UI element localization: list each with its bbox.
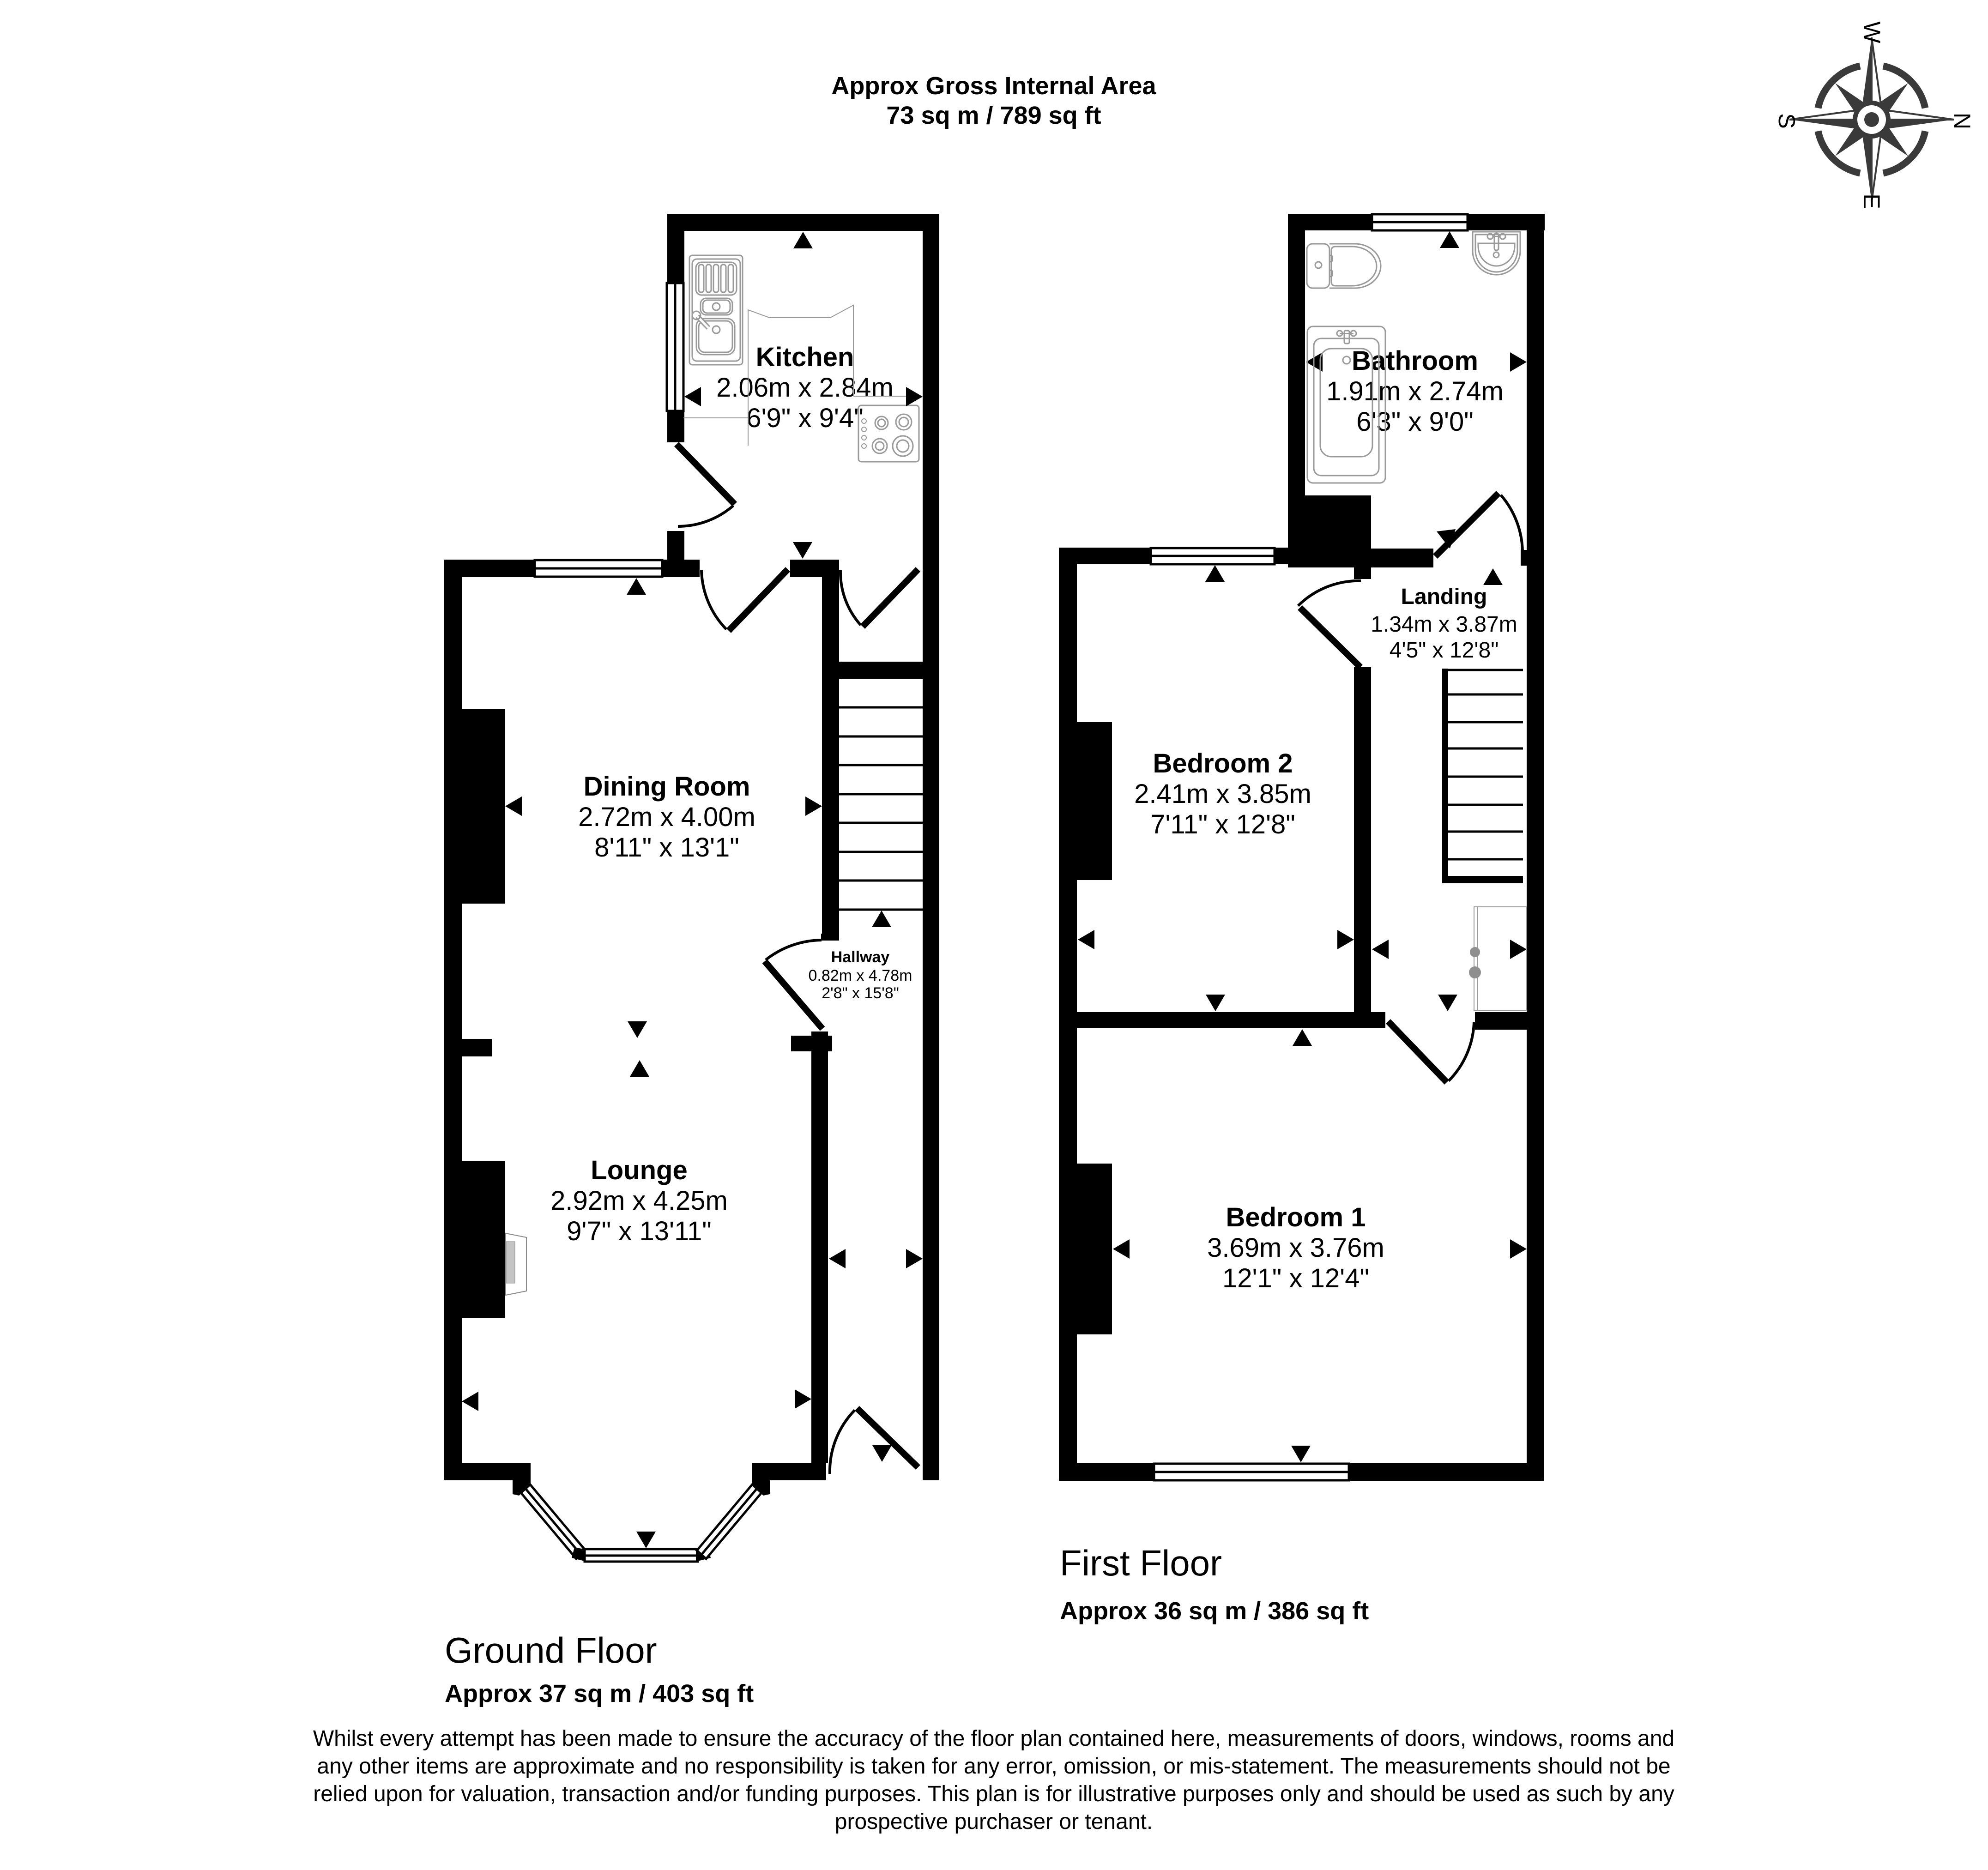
svg-text:any other items are approximat: any other items are approximate and no r… [317,1754,1670,1779]
svg-text:Landing: Landing [1401,585,1487,609]
svg-text:Bedroom 2: Bedroom 2 [1153,748,1293,778]
svg-text:Approx 36 sq m / 386 sq ft: Approx 36 sq m / 386 sq ft [1060,1597,1369,1625]
svg-text:1.91m x 2.74m: 1.91m x 2.74m [1326,376,1504,406]
svg-text:Approx Gross Internal Area: Approx Gross Internal Area [831,72,1156,100]
svg-text:3.69m x 3.76m: 3.69m x 3.76m [1207,1233,1384,1263]
svg-text:12'1" x 12'4": 12'1" x 12'4" [1222,1263,1369,1293]
svg-text:7'11" x 12'8": 7'11" x 12'8" [1150,809,1295,839]
svg-text:1.34m x 3.87m: 1.34m x 3.87m [1371,612,1517,637]
svg-text:9'7" x 13'11": 9'7" x 13'11" [567,1216,712,1246]
svg-text:Whilst every attempt has been: Whilst every attempt has been made to en… [313,1726,1674,1751]
svg-text:Bathroom: Bathroom [1352,346,1478,376]
svg-text:First Floor: First Floor [1060,1543,1222,1583]
svg-text:prospective purchaser or tenan: prospective purchaser or tenant. [835,1810,1153,1834]
svg-text:4'5" x 12'8": 4'5" x 12'8" [1390,638,1499,663]
svg-text:6'3" x 9'0": 6'3" x 9'0" [1356,407,1474,437]
svg-text:2.41m x 3.85m: 2.41m x 3.85m [1134,779,1311,809]
svg-text:Lounge: Lounge [591,1155,687,1185]
svg-text:W: W [1859,21,1885,43]
svg-text:relied upon for valuation, tra: relied upon for valuation, transaction a… [313,1782,1674,1806]
svg-text:Bedroom 1: Bedroom 1 [1226,1202,1366,1232]
svg-text:8'11" x 13'1": 8'11" x 13'1" [594,832,739,863]
svg-text:6'9" x 9'4": 6'9" x 9'4" [746,403,864,433]
svg-text:Kitchen: Kitchen [756,342,854,372]
svg-text:0.82m x 4.78m: 0.82m x 4.78m [809,967,912,984]
svg-text:Hallway: Hallway [831,948,890,966]
svg-text:Dining Room: Dining Room [584,772,750,802]
svg-text:Approx 37 sq m / 403 sq ft: Approx 37 sq m / 403 sq ft [445,1680,754,1707]
svg-text:Ground Floor: Ground Floor [445,1630,657,1671]
svg-text:2.92m x 4.25m: 2.92m x 4.25m [550,1186,728,1216]
svg-text:N: N [1949,113,1975,129]
svg-text:73 sq m / 789 sq ft: 73 sq m / 789 sq ft [886,102,1101,129]
svg-text:S: S [1774,113,1800,128]
svg-text:E: E [1859,193,1885,209]
svg-text:2.72m x 4.00m: 2.72m x 4.00m [578,802,755,832]
svg-text:2.06m x 2.84m: 2.06m x 2.84m [716,373,894,403]
svg-text:2'8" x 15'8": 2'8" x 15'8" [822,984,899,1002]
